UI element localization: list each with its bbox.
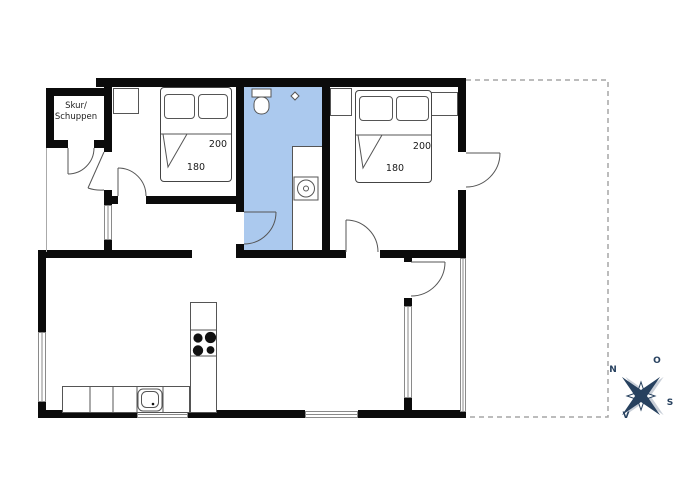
door-bedroom2-terrace xyxy=(466,153,500,187)
compass-north-label: N xyxy=(607,365,619,375)
shed-label-line2: Schuppen xyxy=(55,112,97,122)
shower-symbol-icon xyxy=(291,92,299,100)
floor-plan-canvas: Skur/ Schuppen 200 180 200 180 N O S V xyxy=(0,0,700,500)
compass-south-label: S xyxy=(664,398,676,408)
bathroom-sink-icon xyxy=(294,177,318,200)
shed-label-line1: Skur/ xyxy=(65,101,87,111)
door-annex xyxy=(411,262,445,296)
bed1-width-label: 180 xyxy=(183,162,209,173)
bed2-length-label: 200 xyxy=(409,141,435,152)
bed1-length-label: 200 xyxy=(205,139,231,150)
kitchen-sink-icon xyxy=(138,389,162,411)
door-bedroom2 xyxy=(346,220,378,252)
bed2-width-label: 180 xyxy=(382,163,408,174)
compass-east-label: O xyxy=(651,356,663,366)
stove-icon xyxy=(193,332,216,356)
shed-label: Skur/ Schuppen xyxy=(46,101,106,123)
plan-overlay xyxy=(0,0,700,500)
terrace-dashed-outline xyxy=(466,80,608,417)
door-shed xyxy=(68,148,94,174)
toilet-icon xyxy=(252,89,271,114)
compass-west-label: V xyxy=(620,411,632,421)
door-bedroom1 xyxy=(118,168,146,196)
door-entrance xyxy=(88,152,104,190)
door-bathroom xyxy=(244,212,276,244)
